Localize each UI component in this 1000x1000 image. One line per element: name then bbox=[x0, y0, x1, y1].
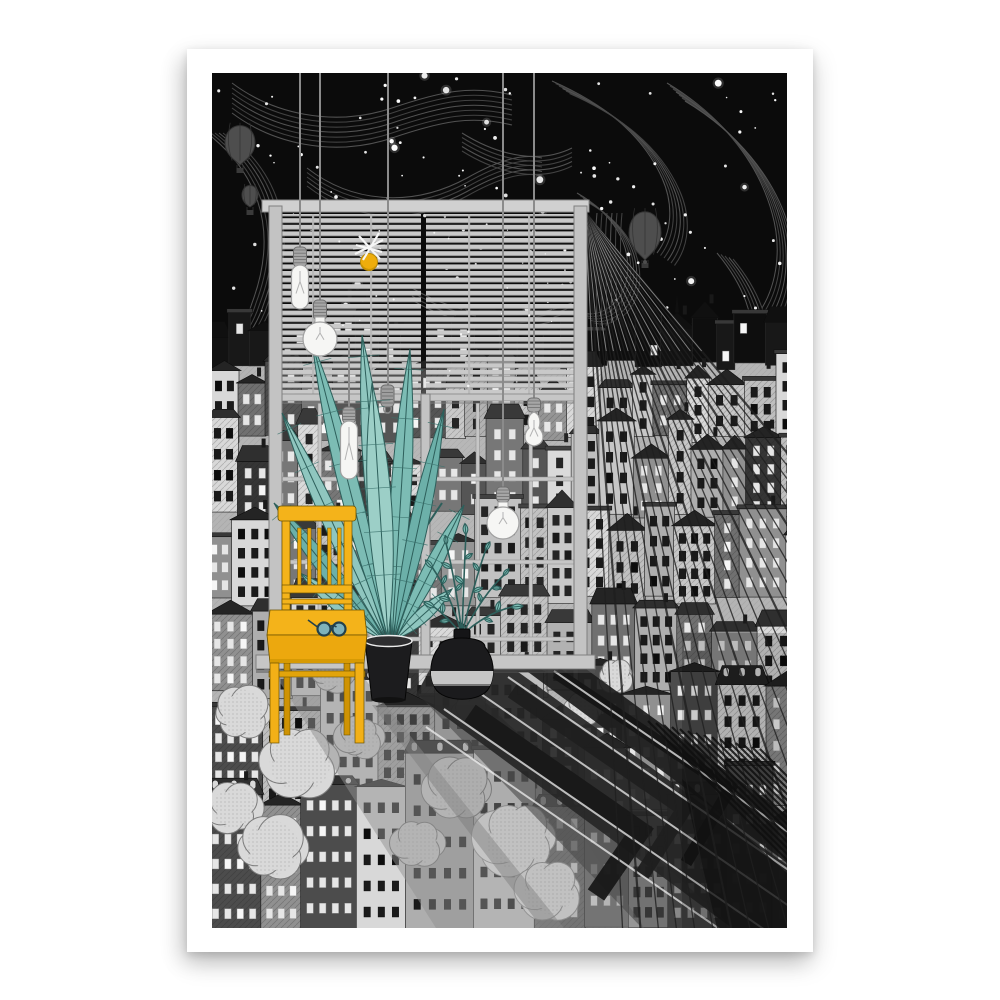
yellow-ball bbox=[361, 254, 378, 271]
artwork bbox=[212, 73, 787, 928]
art-print-poster bbox=[187, 49, 813, 952]
page-background bbox=[0, 0, 1000, 1000]
